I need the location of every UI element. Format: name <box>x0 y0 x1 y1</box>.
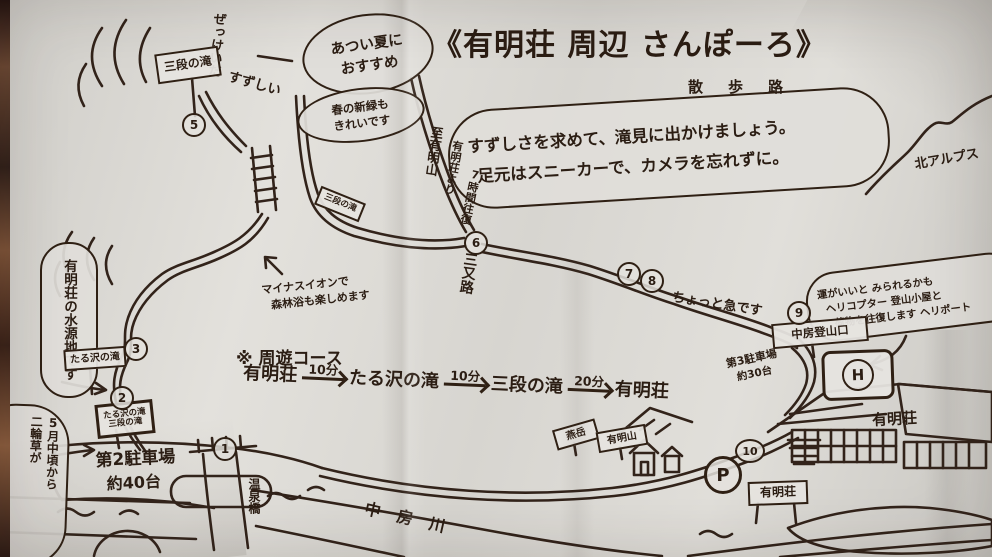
nirinso-bubble: 5月中頃から 二輪草が <box>0 402 71 557</box>
course-step-2: たる沢の滝 <box>349 363 440 393</box>
waypoint-1: 1 <box>213 437 237 461</box>
parking2-label: 第2駐車場 約40台 <box>95 442 177 495</box>
page-title-reading: 散 歩 路 <box>688 76 788 97</box>
arrow-shaft <box>302 377 344 382</box>
sign-text: 有明山 <box>606 430 637 446</box>
waypoint-5: 5 <box>182 113 206 137</box>
photo-left-edge <box>0 0 10 557</box>
waypoint-9: 9 <box>787 301 811 325</box>
page-title: 《有明荘 周辺 さんぽーろ》 <box>432 20 827 64</box>
arrow-shaft <box>444 383 486 388</box>
helipad: H <box>821 349 895 401</box>
course-step-3: 三段の滝 <box>490 370 563 399</box>
parking-mark: P <box>704 456 742 494</box>
sign-text: 中房登山口 <box>791 324 849 342</box>
sign-text: たる沢の滝 <box>70 351 121 365</box>
arrow-shaft <box>568 388 610 393</box>
minus-ion-arrow <box>265 257 282 274</box>
route-arrow-1: 10分 <box>302 363 345 381</box>
parking-loop-road <box>52 442 322 508</box>
sign-lodge-gate: 有明荘 <box>748 480 809 506</box>
nakabusa-river <box>252 487 992 557</box>
waypoint-2: 2 <box>110 386 134 410</box>
waypoint-3: 3 <box>124 337 148 361</box>
hand-drawn-map-photo: 《有明荘 周辺 さんぽーろ》 散 歩 路 すずしさを求めて、滝見に出かけましょう… <box>0 0 992 557</box>
route-arrow-3: 20分 <box>568 375 611 393</box>
bridge-label: 温泉橋 <box>246 478 263 514</box>
sign-text: 三段の滝 <box>163 55 212 75</box>
parking2-line2: 約40台 <box>106 467 177 495</box>
sign-text: 燕岳 <box>565 426 587 442</box>
sign-text: 三段の滝 <box>108 417 143 430</box>
sign-tarusawa-falls: たる沢の滝 <box>63 346 126 371</box>
sign-text: 有明荘 <box>760 486 796 500</box>
waypoint-8: 8 <box>640 269 664 293</box>
waypoint-6: 6 <box>464 231 488 255</box>
course-step-1: 有明荘 <box>243 359 298 387</box>
steam-lines-top <box>78 20 150 106</box>
lodge-label: 有明荘 <box>871 407 917 430</box>
waypoint-10: 10 <box>735 439 765 463</box>
route-arrow-2: 10分 <box>444 369 487 387</box>
water-source-bubble: 有明荘の水源地です <box>40 242 98 398</box>
course-step-4: 有明荘 <box>614 375 669 403</box>
parking2-line1: 第2駐車場 <box>95 442 176 471</box>
waypoint-7: 7 <box>617 262 641 286</box>
helipad-circle: H <box>841 358 874 391</box>
trail-to-falls <box>199 92 246 152</box>
